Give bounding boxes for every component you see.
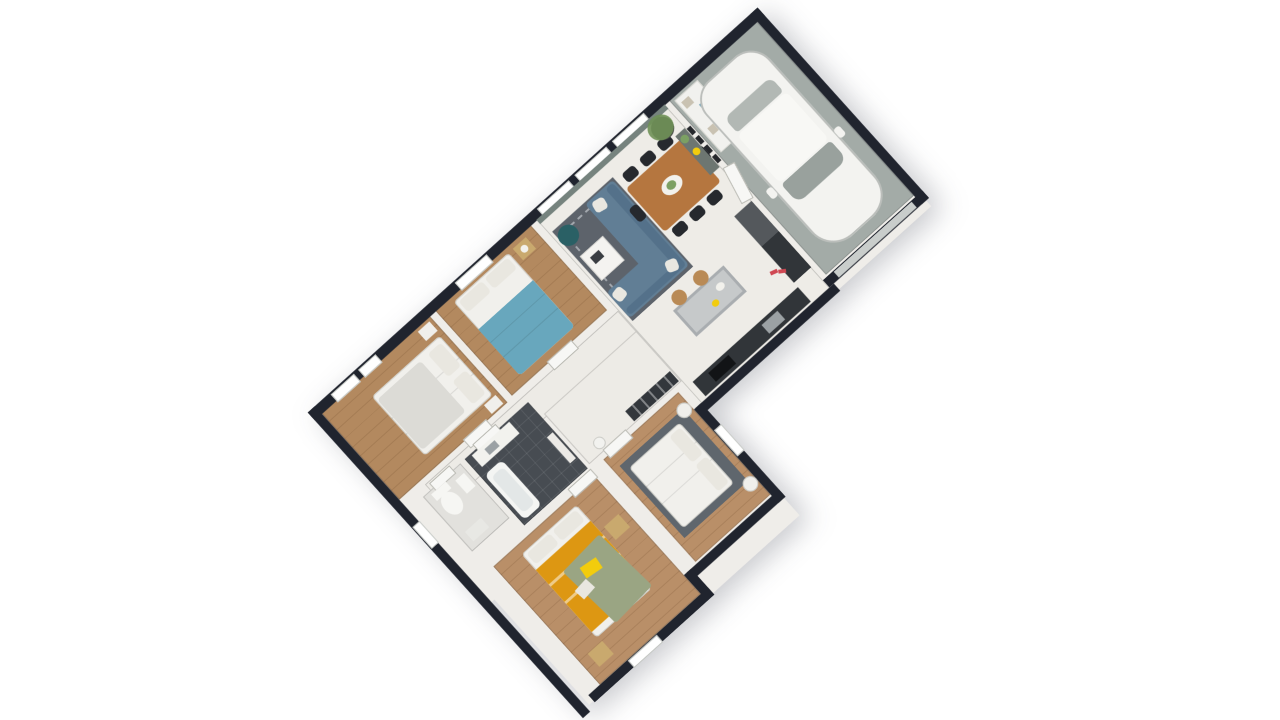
floorplan-render-canvas: { "scene": { "type": "3d-floorplan-top-v… xyxy=(0,0,1280,720)
floor-plan xyxy=(313,10,1033,715)
